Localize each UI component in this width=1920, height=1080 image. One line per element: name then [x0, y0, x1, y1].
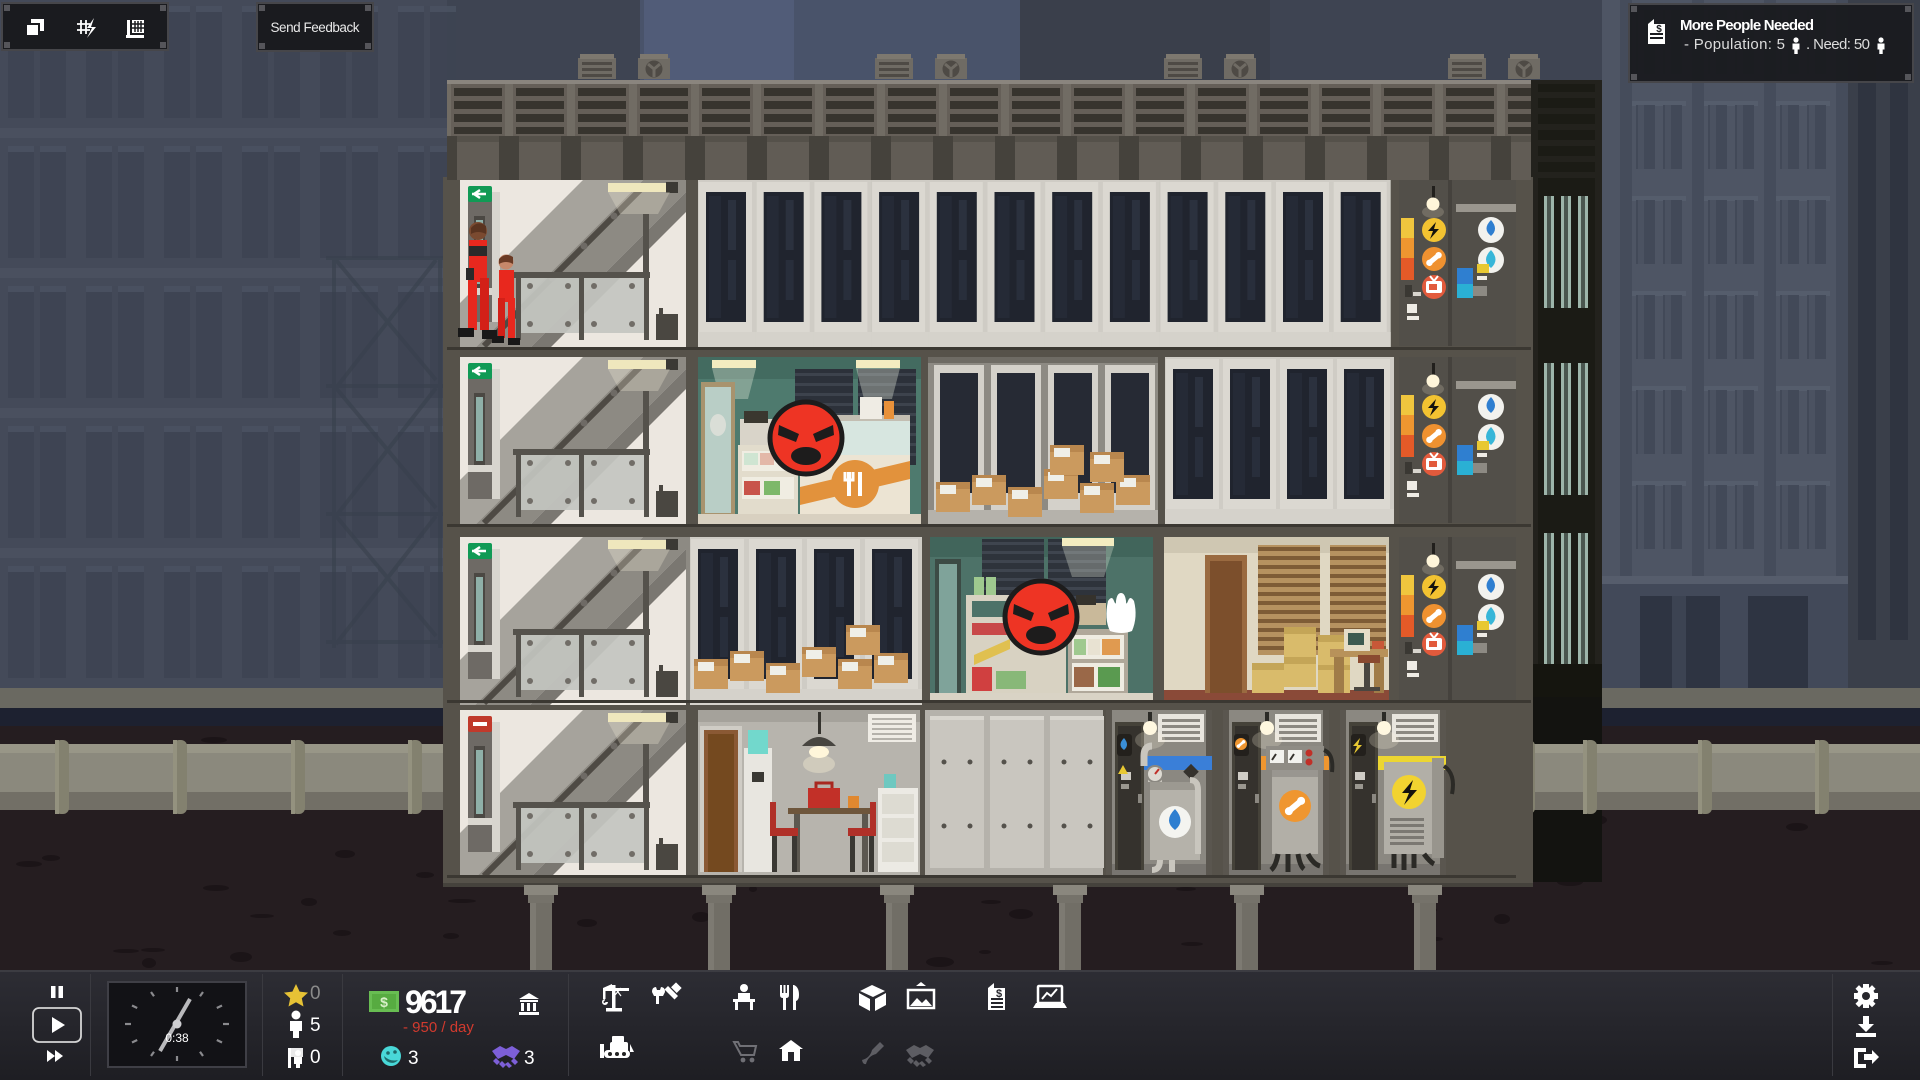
svg-text:$: $ [1656, 24, 1662, 35]
svg-text:- 950 / day: - 950 / day [403, 1019, 474, 1036]
svg-text:Send Feedback: Send Feedback [271, 20, 360, 35]
svg-text:. Need: 50: . Need: 50 [1806, 36, 1870, 53]
svg-text:- Population: 5: - Population: 5 [1684, 36, 1785, 53]
svg-text:3: 3 [524, 1048, 535, 1069]
svg-text:$: $ [996, 988, 1002, 1000]
svg-text:0: 0 [310, 983, 321, 1004]
svg-text:5: 5 [310, 1015, 321, 1036]
svg-text:9617: 9617 [405, 984, 467, 1020]
svg-text:0: 0 [310, 1047, 321, 1068]
svg-text:More People Needed: More People Needed [1680, 17, 1814, 34]
svg-text:3: 3 [408, 1048, 419, 1069]
svg-text:$: $ [380, 994, 388, 1010]
svg-text:0:38: 0:38 [165, 1031, 189, 1045]
